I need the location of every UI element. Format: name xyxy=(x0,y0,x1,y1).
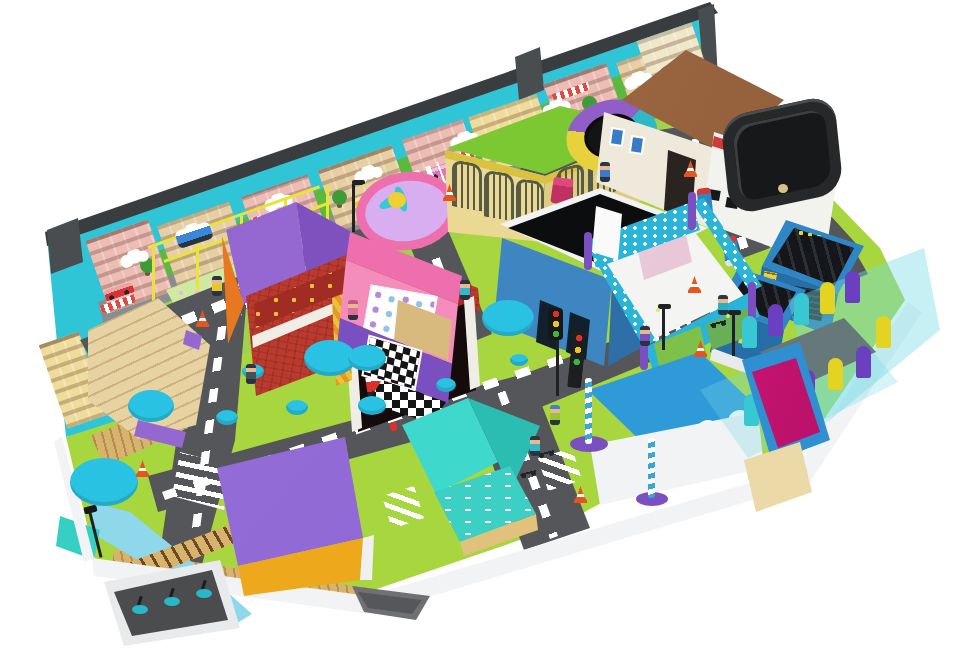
cyan-tree xyxy=(482,300,534,336)
zoo-gate xyxy=(484,170,514,222)
playpen-post xyxy=(688,192,696,230)
playpen-post xyxy=(748,282,756,320)
candy-pole xyxy=(648,438,655,498)
kid-figure xyxy=(530,436,540,456)
cyan-tree xyxy=(358,396,386,415)
soft-pillar xyxy=(876,316,891,348)
fire-hydrant xyxy=(390,422,397,431)
street-lamp xyxy=(724,310,744,356)
kid-figure xyxy=(600,162,610,182)
soft-pillar xyxy=(768,304,783,336)
candy-pole xyxy=(585,378,592,444)
traffic-light-head xyxy=(548,308,563,340)
kid-figure xyxy=(460,280,470,300)
cyan-tree xyxy=(348,345,386,371)
kid-figure xyxy=(246,364,256,384)
cyan-tree xyxy=(436,378,456,392)
soft-pillar xyxy=(742,316,757,348)
soft-pillar xyxy=(828,358,843,390)
ride-station xyxy=(196,580,212,598)
cyan-tree xyxy=(216,410,238,425)
mural-tree xyxy=(332,190,347,205)
cyan-tree xyxy=(70,458,138,506)
soft-pillar xyxy=(794,293,809,325)
ride-station xyxy=(132,596,148,614)
cottage-window xyxy=(611,129,623,144)
street-lamp xyxy=(348,180,368,232)
kid-figure xyxy=(640,326,650,346)
kid-figure xyxy=(212,276,222,296)
cyan-tree xyxy=(510,354,528,366)
playground-render xyxy=(0,0,972,648)
soft-pillar xyxy=(820,282,835,314)
play-cage-strut xyxy=(152,248,155,306)
soft-pillar xyxy=(845,271,860,303)
ride-station xyxy=(164,588,180,606)
fountain-center xyxy=(388,192,406,208)
street-lamp xyxy=(656,304,676,350)
kid-figure xyxy=(718,295,728,315)
kid-figure xyxy=(550,405,560,425)
cottage-window xyxy=(631,137,643,152)
cyan-tree xyxy=(128,390,174,422)
soft-pillar xyxy=(856,346,871,378)
kiosk-roof-lights xyxy=(798,230,824,236)
playpen-post xyxy=(584,232,592,270)
kid-figure xyxy=(348,300,358,320)
foam-ball xyxy=(778,184,788,193)
cyan-tree xyxy=(286,400,308,415)
zoo-gate xyxy=(452,159,482,211)
